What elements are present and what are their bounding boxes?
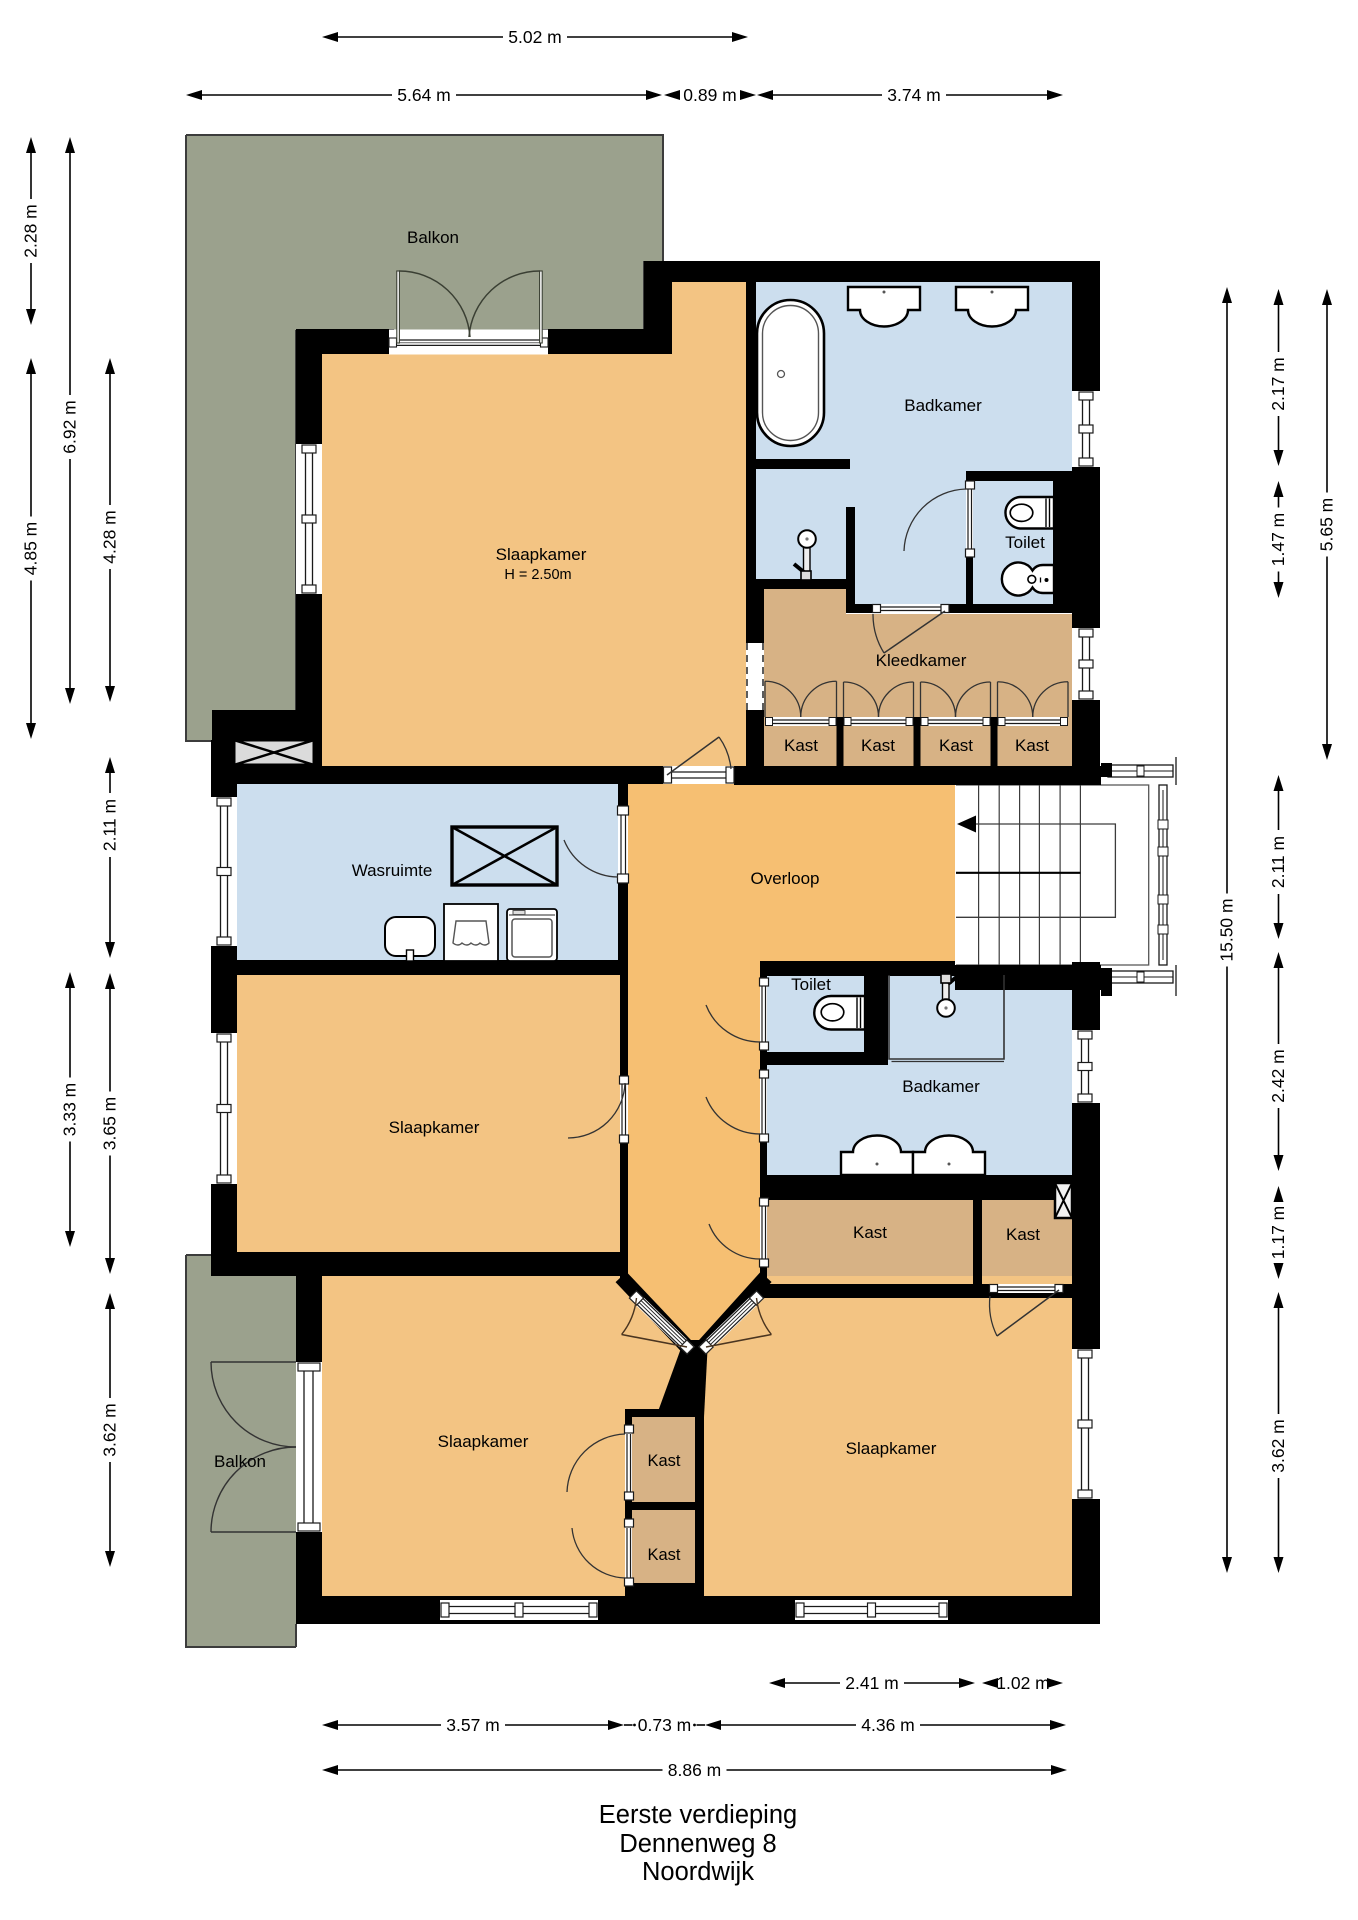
svg-text:1.17 m: 1.17 m <box>1268 1206 1288 1260</box>
svg-text:1.47 m: 1.47 m <box>1268 513 1288 567</box>
svg-text:Eerste verdieping: Eerste verdieping <box>599 1801 797 1829</box>
svg-text:3.62 m: 3.62 m <box>1268 1419 1288 1473</box>
svg-text:Overloop: Overloop <box>751 869 820 888</box>
svg-text:Toilet: Toilet <box>791 975 831 994</box>
svg-text:2.28 m: 2.28 m <box>21 204 41 258</box>
svg-text:5.02 m: 5.02 m <box>508 27 562 47</box>
svg-text:Slaapkamer: Slaapkamer <box>846 1439 937 1458</box>
svg-text:0.73 m: 0.73 m <box>638 1715 692 1735</box>
svg-text:2.11 m: 2.11 m <box>1268 836 1288 888</box>
svg-text:1.02 m: 1.02 m <box>996 1673 1050 1693</box>
svg-text:0.89 m: 0.89 m <box>683 85 737 105</box>
svg-text:4.85 m: 4.85 m <box>21 522 41 576</box>
svg-text:Kast: Kast <box>784 736 818 755</box>
svg-text:Badkamer: Badkamer <box>904 396 982 415</box>
svg-text:Balkon: Balkon <box>407 228 459 247</box>
svg-text:Slaapkamer: Slaapkamer <box>438 1432 529 1451</box>
svg-text:2.17 m: 2.17 m <box>1268 357 1288 411</box>
svg-text:Badkamer: Badkamer <box>902 1077 980 1096</box>
svg-text:Kast: Kast <box>853 1223 887 1242</box>
svg-text:3.33 m: 3.33 m <box>60 1083 80 1137</box>
svg-text:Kleedkamer: Kleedkamer <box>876 651 967 670</box>
svg-text:Balkon: Balkon <box>214 1452 266 1471</box>
svg-text:15.50 m: 15.50 m <box>1217 898 1237 961</box>
svg-text:2.11 m: 2.11 m <box>100 799 120 851</box>
svg-text:8.86 m: 8.86 m <box>668 1760 722 1780</box>
svg-text:6.92 m: 6.92 m <box>60 400 80 454</box>
svg-text:2.41 m: 2.41 m <box>845 1673 899 1693</box>
svg-text:5.65 m: 5.65 m <box>1317 498 1337 552</box>
svg-text:3.65 m: 3.65 m <box>100 1097 120 1151</box>
svg-text:Kast: Kast <box>1015 736 1049 755</box>
svg-text:Slaapkamer: Slaapkamer <box>389 1118 480 1137</box>
svg-text:H = 2.50m: H = 2.50m <box>504 567 571 583</box>
svg-text:Toilet: Toilet <box>1005 533 1045 552</box>
svg-text:Kast: Kast <box>939 736 973 755</box>
svg-text:Kast: Kast <box>861 736 895 755</box>
svg-text:3.57 m: 3.57 m <box>446 1715 500 1735</box>
svg-text:Kast: Kast <box>647 1546 680 1564</box>
svg-text:Kast: Kast <box>1006 1225 1040 1244</box>
svg-text:Noordwijk: Noordwijk <box>642 1858 754 1886</box>
svg-text:4.28 m: 4.28 m <box>100 510 120 564</box>
svg-text:2.42 m: 2.42 m <box>1268 1049 1288 1103</box>
svg-text:5.64 m: 5.64 m <box>397 85 451 105</box>
svg-text:3.62 m: 3.62 m <box>100 1403 120 1457</box>
svg-text:Dennenweg 8: Dennenweg 8 <box>619 1830 776 1858</box>
svg-text:Kast: Kast <box>647 1452 680 1470</box>
svg-text:3.74 m: 3.74 m <box>887 85 941 105</box>
svg-text:Wasruimte: Wasruimte <box>352 861 433 880</box>
svg-text:Slaapkamer: Slaapkamer <box>496 545 587 564</box>
svg-text:4.36 m: 4.36 m <box>861 1715 915 1735</box>
